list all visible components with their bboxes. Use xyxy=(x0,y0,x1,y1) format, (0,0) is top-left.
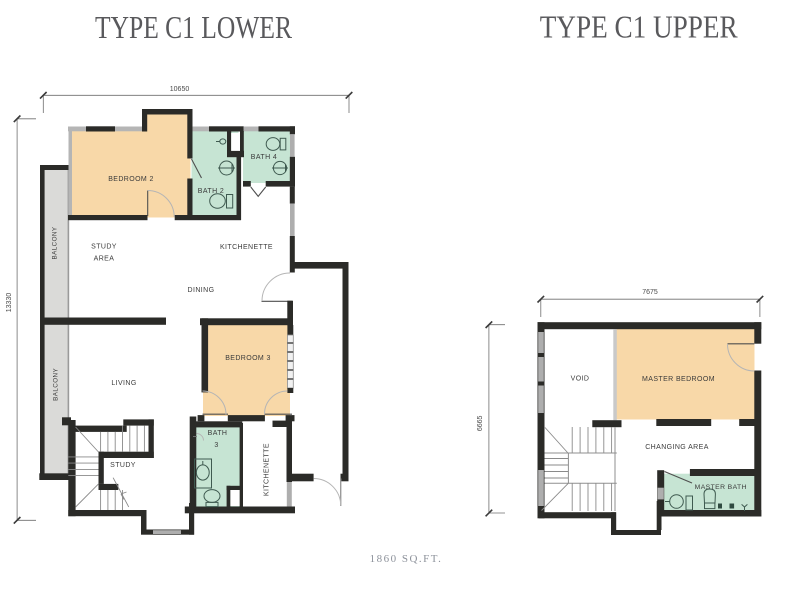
svg-text:TYPE C1 UPPER: TYPE C1 UPPER xyxy=(540,9,739,45)
svg-text:BALCONY: BALCONY xyxy=(52,226,59,259)
svg-text:KITCHENETTE: KITCHENETTE xyxy=(220,244,273,251)
svg-text:BATH: BATH xyxy=(208,430,228,437)
svg-text:CHANGING AREA: CHANGING AREA xyxy=(645,444,709,451)
svg-text:BEDROOM 3: BEDROOM 3 xyxy=(225,355,271,362)
svg-text:LIVING: LIVING xyxy=(111,380,136,387)
svg-text:1860 SQ.FT.: 1860 SQ.FT. xyxy=(370,553,443,565)
svg-text:6665: 6665 xyxy=(477,416,484,432)
svg-text:STUDY: STUDY xyxy=(110,462,136,469)
svg-text:MASTER BATH: MASTER BATH xyxy=(695,484,747,491)
svg-text:STUDY: STUDY xyxy=(91,244,117,251)
svg-text:7675: 7675 xyxy=(642,289,658,296)
svg-text:3: 3 xyxy=(214,442,218,449)
svg-text:KITCHENETTE: KITCHENETTE xyxy=(264,443,271,496)
svg-text:13330: 13330 xyxy=(6,293,13,313)
svg-text:DINING: DINING xyxy=(188,287,215,294)
svg-text:TYPE C1 LOWER: TYPE C1 LOWER xyxy=(95,9,293,45)
svg-text:BATH 4: BATH 4 xyxy=(251,154,277,161)
svg-text:BEDROOM 2: BEDROOM 2 xyxy=(108,176,154,183)
svg-text:BALCONY: BALCONY xyxy=(52,368,59,401)
svg-text:AREA: AREA xyxy=(94,256,115,263)
svg-text:VOID: VOID xyxy=(571,376,590,383)
svg-text:10650: 10650 xyxy=(170,86,190,93)
svg-text:MASTER BEDROOM: MASTER BEDROOM xyxy=(642,376,715,383)
